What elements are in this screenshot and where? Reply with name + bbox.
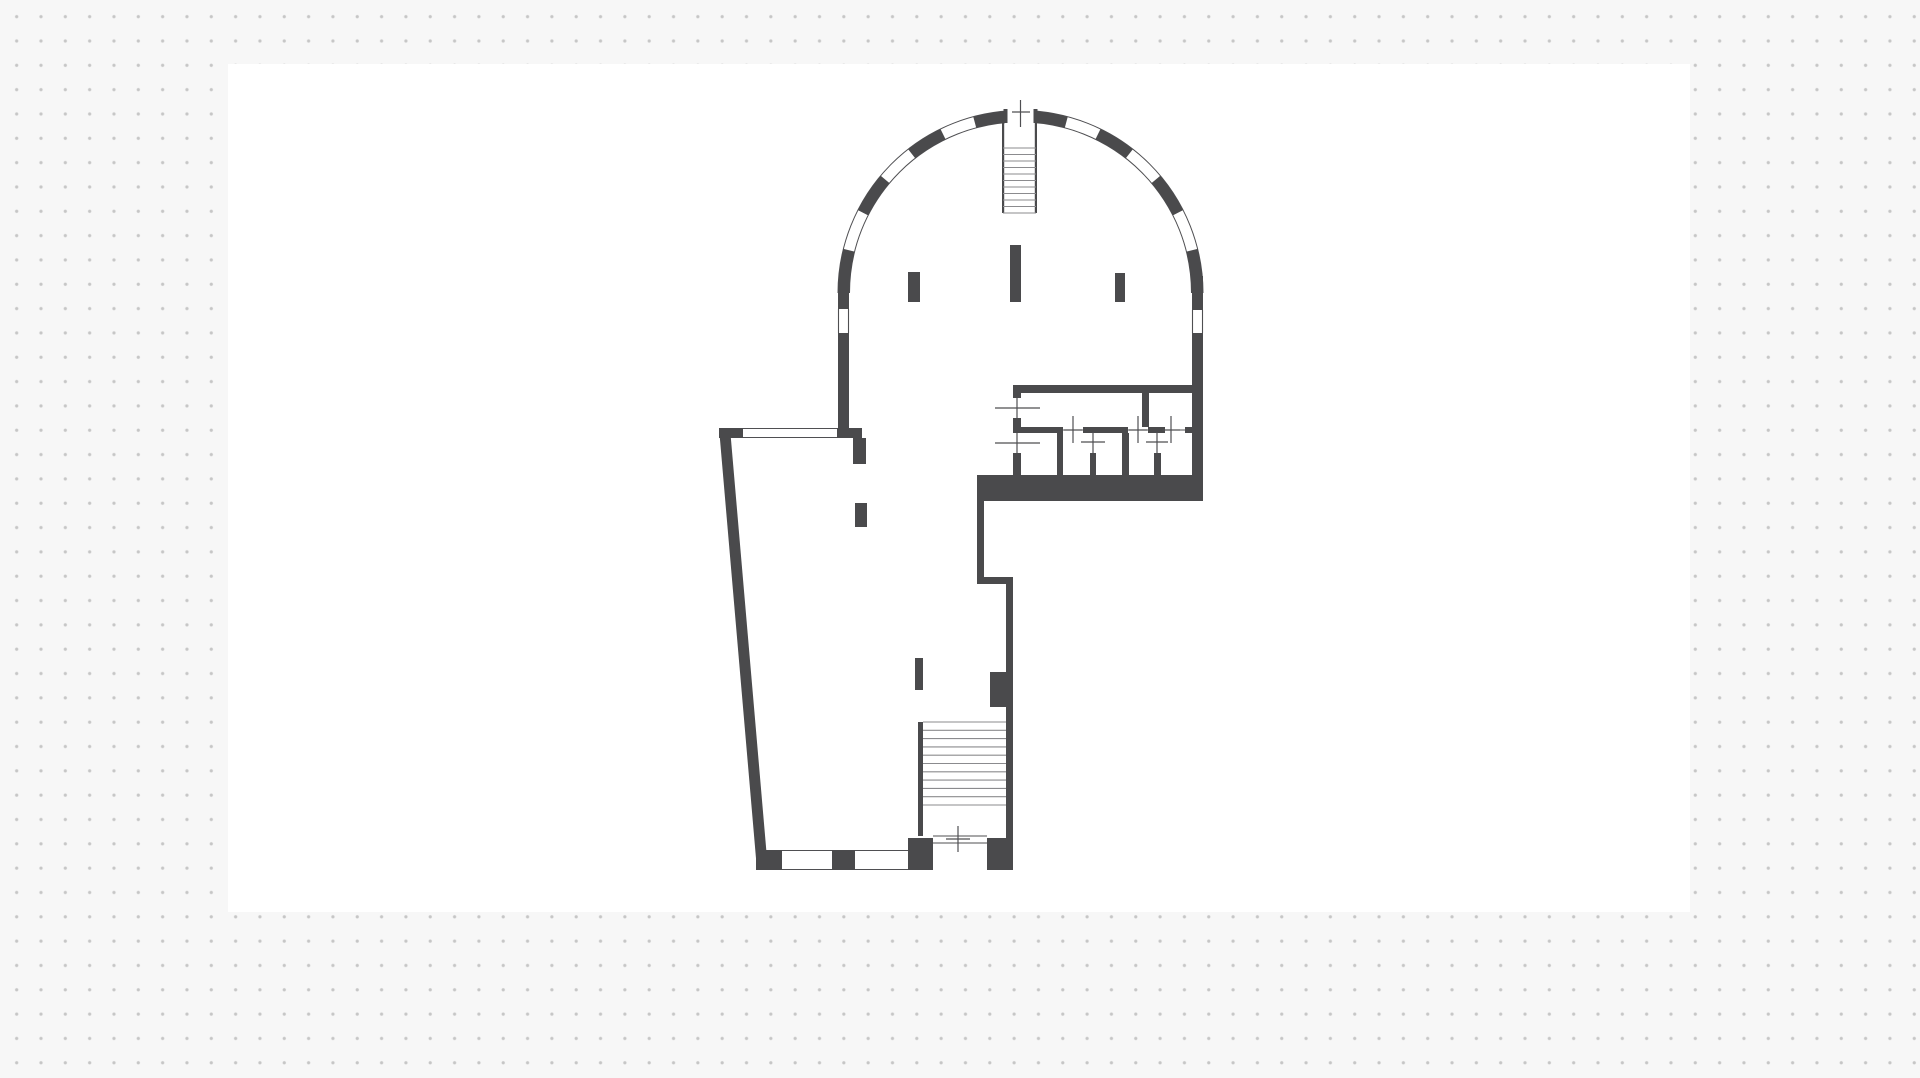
wall-segment[interactable] xyxy=(1185,427,1192,433)
wall-stub[interactable] xyxy=(908,272,920,302)
wall-segment[interactable] xyxy=(832,850,855,870)
wall-segment[interactable] xyxy=(918,722,923,836)
wall-segment[interactable] xyxy=(1013,453,1021,477)
wall-stub[interactable] xyxy=(915,658,923,690)
arc-wall-segment[interactable] xyxy=(844,250,849,293)
wall-stub[interactable] xyxy=(855,503,867,527)
wall-segment[interactable] xyxy=(990,672,1006,707)
arc-door-jamb xyxy=(1004,109,1008,123)
wall-segment[interactable] xyxy=(1122,433,1129,477)
stairs[interactable] xyxy=(923,722,1006,805)
wall-segment[interactable] xyxy=(977,577,1013,584)
wall-segment[interactable] xyxy=(977,501,984,584)
wall-segment[interactable] xyxy=(977,475,1203,501)
wall-segment[interactable] xyxy=(1192,276,1203,310)
arc-door-jamb xyxy=(1034,109,1038,123)
wall-segment[interactable] xyxy=(908,838,933,870)
arc-wall-segment[interactable] xyxy=(975,117,1007,122)
wall-segment[interactable] xyxy=(1021,427,1063,433)
wall-stub[interactable] xyxy=(1115,273,1125,302)
wall-segment[interactable] xyxy=(1006,584,1013,870)
wall-segment[interactable] xyxy=(853,438,866,464)
wall-segment[interactable] xyxy=(1013,385,1021,398)
wall-segment[interactable] xyxy=(1013,418,1021,433)
wall-segment[interactable] xyxy=(1142,393,1149,427)
wall-segment[interactable] xyxy=(837,428,862,438)
wall-segment[interactable] xyxy=(1057,433,1063,477)
wall-stub[interactable] xyxy=(1010,245,1021,302)
stairs[interactable] xyxy=(1003,148,1036,213)
wall-segment[interactable] xyxy=(1021,385,1192,393)
grid-background[interactable] xyxy=(0,0,1920,1078)
wall-segment[interactable] xyxy=(1090,453,1096,477)
wall-segment[interactable] xyxy=(987,838,1013,870)
floorplan-canvas[interactable] xyxy=(0,0,1920,1078)
wall-segment[interactable] xyxy=(1083,427,1128,433)
wall-segment[interactable] xyxy=(838,333,849,438)
wall-segment[interactable] xyxy=(838,293,849,309)
wall-segment[interactable] xyxy=(1154,453,1161,477)
arc-wall-segment[interactable] xyxy=(1034,117,1066,122)
